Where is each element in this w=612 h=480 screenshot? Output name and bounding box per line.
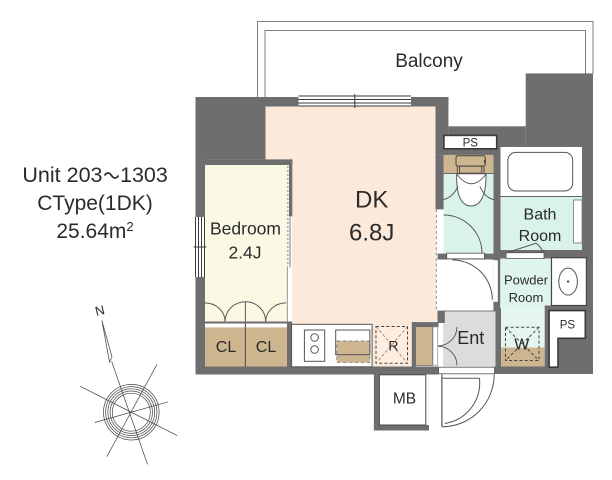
svg-text:Room: Room — [519, 228, 562, 245]
svg-text:6.8J: 6.8J — [349, 220, 394, 247]
svg-text:Ent: Ent — [457, 328, 484, 348]
svg-text:Bedroom: Bedroom — [210, 219, 281, 239]
svg-text:PS: PS — [560, 319, 576, 331]
svg-text:W: W — [514, 337, 530, 354]
svg-text:Balcony: Balcony — [395, 51, 463, 72]
svg-text:2.4J: 2.4J — [228, 243, 261, 263]
svg-text:CType(1DK): CType(1DK) — [37, 192, 153, 215]
svg-text:Bath: Bath — [524, 207, 557, 224]
svg-text:Powder: Powder — [504, 273, 549, 288]
svg-text:Unit 203: Unit 203 — [22, 163, 102, 187]
svg-text:Room: Room — [509, 290, 544, 305]
svg-text:DK: DK — [355, 187, 388, 214]
svg-text:CL: CL — [216, 339, 237, 356]
svg-text:PS: PS — [463, 138, 479, 150]
svg-text:R: R — [388, 338, 398, 354]
svg-text:25.64m2: 25.64m2 — [56, 219, 133, 243]
svg-text:CL: CL — [256, 339, 277, 356]
svg-text:1303: 1303 — [120, 163, 168, 187]
svg-text:MB: MB — [393, 391, 416, 408]
